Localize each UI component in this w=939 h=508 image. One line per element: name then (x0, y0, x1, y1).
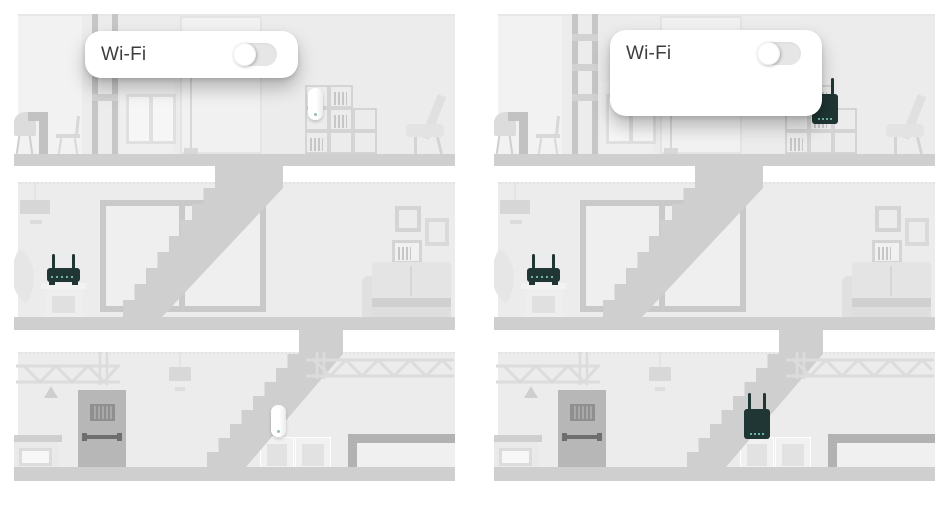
basement-door (78, 390, 126, 470)
garage-opening-post (348, 443, 357, 470)
counter-wall-post (519, 121, 528, 154)
basement-lamp-cord (659, 352, 661, 367)
books (398, 247, 411, 260)
basement-lamp-cord (179, 352, 181, 367)
bookshelf-cell (353, 131, 377, 154)
counter-wall-post (39, 121, 48, 154)
white-range-extender-shelf (308, 88, 323, 120)
basement-lamp-bulb (175, 387, 185, 391)
basement-lamp-shade (169, 367, 191, 381)
bookshelf-cell (353, 108, 377, 131)
sofa-base (852, 307, 931, 317)
wifi-card-row: Wi-Fi (610, 30, 822, 77)
picture-frame (425, 218, 449, 246)
ladder-shelf-rung (92, 94, 118, 101)
router-body (47, 268, 80, 282)
wifi-label: Wi-Fi (101, 44, 146, 66)
extender-led-light (277, 430, 280, 433)
garage-opening-post (828, 443, 837, 470)
door-push-bar-mount (82, 433, 87, 441)
floor-slab (494, 467, 935, 481)
door-vent-grille (570, 404, 595, 421)
workbench-top (14, 435, 62, 442)
floor-slab (494, 154, 935, 166)
cone-marker (44, 386, 58, 398)
bookshelf-cell (305, 131, 329, 154)
books (334, 115, 347, 128)
counter-wall (508, 112, 528, 121)
ladder-shelf-rung (572, 94, 598, 101)
wifi-card: Wi-Fi (85, 31, 298, 78)
basement-door (558, 390, 606, 470)
storage-box-panel (782, 444, 804, 466)
workbench-panel (499, 448, 532, 466)
sideboard-door (150, 94, 176, 144)
wifi-card: Wi-Fi (610, 30, 822, 116)
sofa-seat (852, 298, 931, 307)
garage-opening-lintel (348, 434, 455, 443)
storage-box-panel (267, 444, 287, 466)
basement-lamp-bulb (655, 387, 665, 391)
extender-led-lights (818, 118, 832, 120)
books (878, 247, 891, 260)
house-illustration-right: Wi-Fi (494, 14, 935, 481)
pendant-lamp-bulb (510, 220, 522, 224)
wifi-toggle-knob[interactable] (233, 43, 256, 66)
wifi-toggle[interactable] (757, 42, 801, 65)
sideboard-door (126, 94, 152, 144)
sideboard (120, 82, 174, 154)
floor-slab (14, 154, 455, 166)
books (310, 138, 323, 151)
bookshelf-cell (329, 108, 353, 131)
wifi-router (47, 254, 80, 286)
house-illustration-left: Wi-Fi (14, 14, 455, 481)
door-push-bar-mount (597, 433, 602, 441)
armchair-seat (886, 124, 924, 137)
router-foot (72, 282, 78, 285)
router-cabinet-door (532, 296, 555, 313)
cone-marker (524, 386, 538, 398)
router-led-lights (531, 276, 556, 278)
wifi-label: Wi-Fi (626, 43, 671, 65)
pendant-lamp-shade (500, 200, 530, 214)
sofa-cushion-seam (890, 266, 892, 296)
ladder-shelf-rung (572, 34, 598, 41)
door-push-bar-mount (117, 433, 122, 441)
picture-frame (395, 206, 421, 232)
sofa-seat (372, 298, 451, 307)
router-antenna (72, 254, 75, 269)
wifi-toggle-knob[interactable] (757, 42, 780, 65)
router-led-lights (51, 276, 76, 278)
wifi-toggle[interactable] (233, 43, 277, 66)
door-push-bar (564, 435, 600, 439)
window-mullion (179, 200, 185, 312)
router-antenna (52, 254, 55, 269)
wifi-router (527, 254, 560, 286)
router-antenna (532, 254, 535, 269)
pendant-lamp-shade (20, 200, 50, 214)
armchair-seat (406, 124, 444, 137)
bookshelf-cell (329, 131, 353, 154)
floor-lamp-pole (190, 78, 192, 148)
workbench-top (494, 435, 542, 442)
counter-wall (28, 112, 48, 121)
door-push-bar-mount (562, 433, 567, 441)
router-body (527, 268, 560, 282)
bookshelf-cell (329, 85, 353, 108)
garage-opening-lintel (828, 434, 935, 443)
basement-lamp-shade (649, 367, 671, 381)
bookshelf-cell (833, 131, 857, 154)
armchair-leg (894, 137, 897, 154)
white-range-extender-basement (271, 405, 286, 437)
wifi-card-row: Wi-Fi (85, 31, 298, 78)
bookshelf-cell (785, 131, 809, 154)
window-mullion (659, 200, 665, 312)
floor-slab (14, 317, 455, 330)
books (790, 138, 803, 151)
router-foot (552, 282, 558, 285)
pendant-lamp-cord (34, 182, 36, 200)
armchair-leg (414, 137, 417, 154)
storage-box-panel (302, 444, 324, 466)
router-cabinet-door (52, 296, 75, 313)
extender-led-light (314, 113, 317, 116)
sofa-base (372, 307, 451, 317)
wall-shelf (872, 240, 902, 264)
dark-range-extender-basement (744, 393, 770, 439)
router-antenna (552, 254, 555, 269)
extender-body (744, 409, 770, 439)
floor-slab (14, 467, 455, 481)
door-push-bar (84, 435, 120, 439)
workbench-panel (19, 448, 52, 466)
pendant-lamp-bulb (30, 220, 42, 224)
bookshelf-cell (809, 131, 833, 154)
sofa-cushion-seam (410, 266, 412, 296)
router-foot (529, 282, 535, 285)
books (334, 92, 347, 105)
router-foot (49, 282, 55, 285)
picture-frame (905, 218, 929, 246)
wall-shelf (392, 240, 422, 264)
floor-slab (494, 317, 935, 330)
door-vent-grille (90, 404, 115, 421)
pendant-lamp-cord (514, 182, 516, 200)
garage-opening (357, 443, 455, 470)
garage-opening (837, 443, 935, 470)
picture-frame (875, 206, 901, 232)
storage-box-panel (747, 444, 767, 466)
ladder-shelf-rung (572, 64, 598, 71)
extender-led-lights (750, 433, 764, 435)
